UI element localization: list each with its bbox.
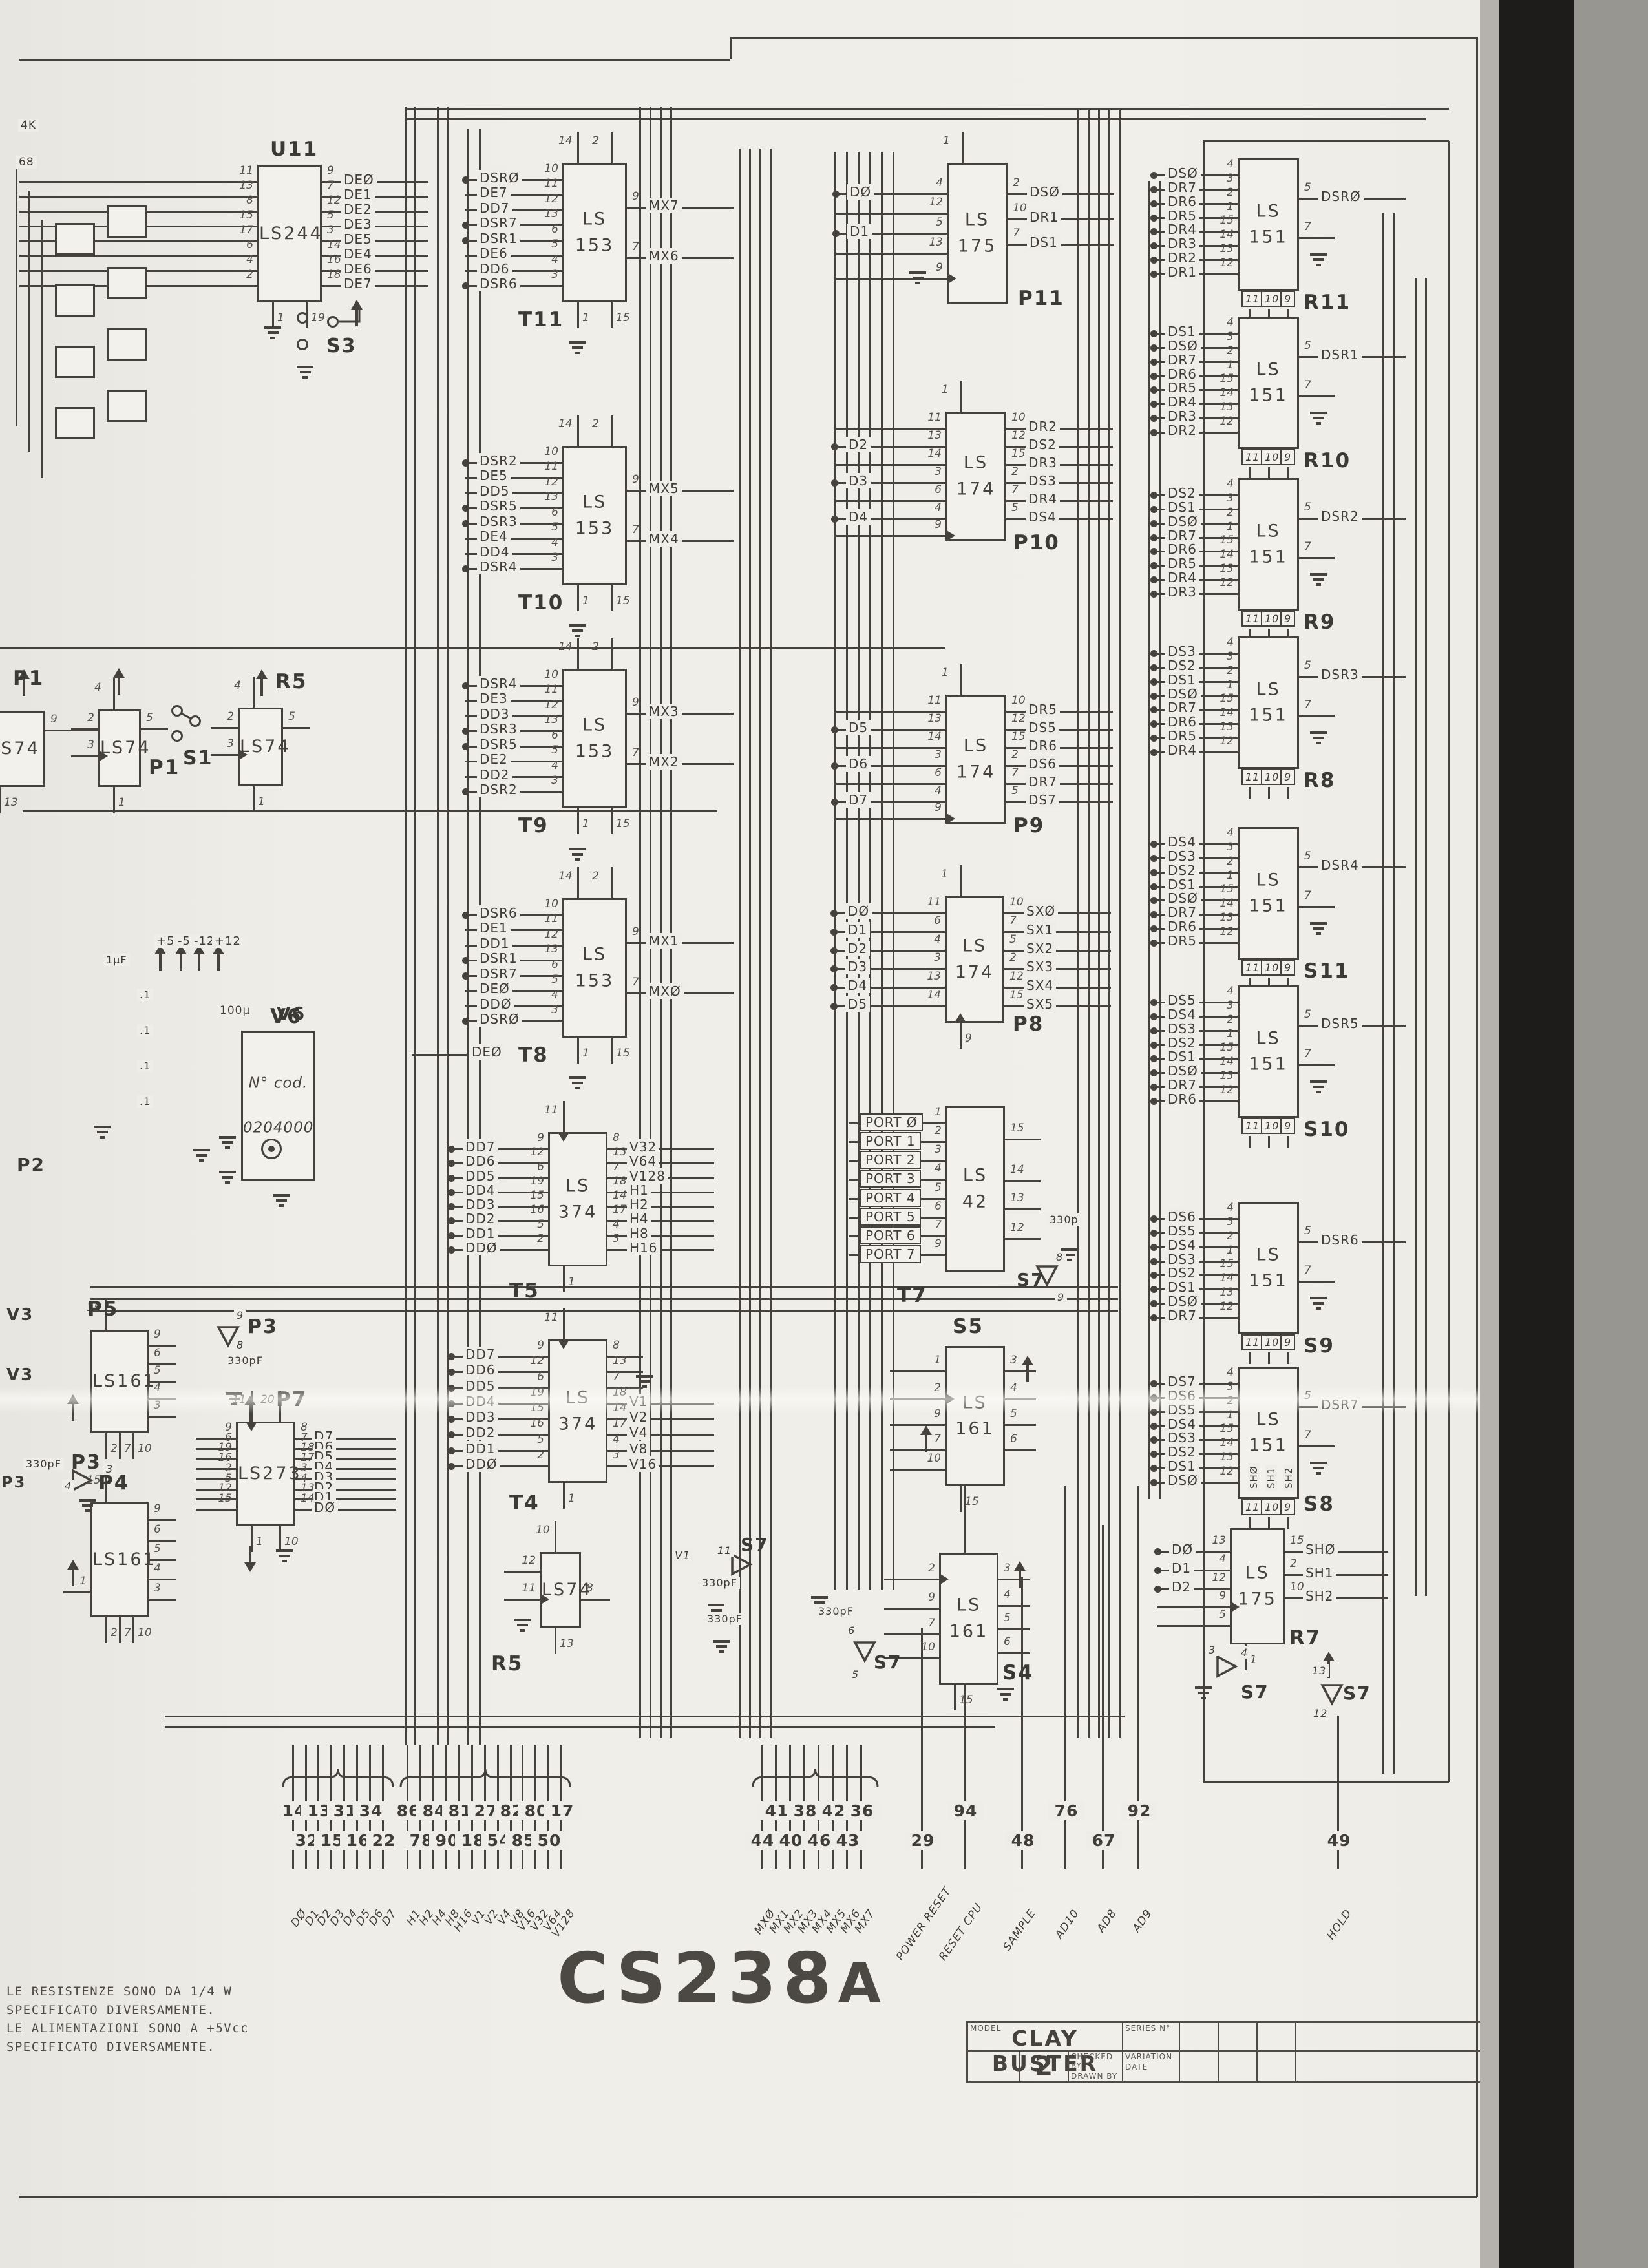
pin-net-label: DE3 bbox=[477, 691, 511, 706]
pin-net-label: PORT Ø bbox=[860, 1113, 923, 1131]
pin-number: 11 bbox=[536, 177, 558, 190]
pin-number: 9 bbox=[154, 1328, 161, 1341]
pin-net-label: D3 bbox=[846, 473, 871, 488]
pin-net-label: DSRØ bbox=[1318, 189, 1364, 204]
net-label: 4 bbox=[62, 1480, 74, 1492]
pin-number: 1 bbox=[582, 817, 589, 830]
pin-number: 5 bbox=[1304, 501, 1311, 514]
pin-number: 5 bbox=[154, 1364, 161, 1377]
pin-net-label: DR2 bbox=[1026, 419, 1060, 434]
title-block: MODEL CLAY BUSTER SERIES N° 2 CHECKED BY… bbox=[966, 2021, 1486, 2083]
connector-pin-number: 17 bbox=[544, 1801, 580, 1820]
pin-number: 12 bbox=[1212, 1465, 1234, 1478]
clock-pin-marker bbox=[955, 1013, 966, 1022]
pin-net-label: DSR7 bbox=[477, 215, 520, 231]
pin-number: 4 bbox=[1010, 1381, 1017, 1394]
pin-number: 13 bbox=[1212, 720, 1234, 733]
pin-net-label: DE4 bbox=[477, 529, 511, 544]
pin-number: 1 bbox=[582, 594, 589, 607]
title-block-empty-cell bbox=[1180, 2023, 1219, 2052]
pin-number: 5 bbox=[1304, 659, 1311, 672]
pin-number: 11 bbox=[920, 411, 942, 424]
pin-number: 2 bbox=[1212, 1394, 1234, 1407]
pin-number: 4 bbox=[1212, 985, 1234, 998]
pin-net-label: DD1 bbox=[463, 1441, 498, 1456]
pin-number: 5 bbox=[1009, 933, 1017, 946]
drawn-by-label: DRAWN BY bbox=[1069, 2071, 1122, 2081]
pin-number: 12 bbox=[1011, 712, 1026, 725]
pin-net-label: DR4 bbox=[1165, 394, 1199, 410]
pin-net-label: PORT 7 bbox=[860, 1245, 921, 1263]
pin-number: 5 bbox=[536, 744, 558, 757]
chip-designator: P1 bbox=[13, 667, 44, 690]
power-arrow-up bbox=[154, 945, 166, 971]
pin-number: 12 bbox=[1212, 576, 1234, 589]
pin-number: 2 bbox=[1212, 344, 1234, 357]
switch-contact bbox=[297, 339, 308, 350]
pin-net-label: V64 bbox=[627, 1153, 659, 1169]
clock-pin-marker bbox=[541, 1594, 549, 1604]
pin-number-boxed: 9 bbox=[1280, 1499, 1295, 1515]
pin-number: 5 bbox=[1304, 850, 1311, 863]
pin-number: 15 bbox=[1290, 1534, 1304, 1547]
pin-number: 6 bbox=[231, 238, 253, 251]
pin-net-label: MX2 bbox=[646, 754, 682, 770]
pin-net-label: DR7 bbox=[1165, 352, 1199, 368]
chip-designator: R5 bbox=[491, 1652, 523, 1675]
chip-designator: R8 bbox=[1304, 769, 1335, 792]
pin-number: 7 bbox=[1304, 1429, 1311, 1442]
power-arrow-up bbox=[193, 945, 205, 971]
clock-pin-marker bbox=[947, 530, 955, 541]
pin-number: 1 bbox=[568, 1492, 575, 1505]
pin-net-label: D4 bbox=[845, 978, 870, 993]
designator-label: P2 bbox=[17, 1154, 45, 1175]
ground-symbol bbox=[513, 1619, 531, 1634]
pin-number: 8 bbox=[231, 194, 253, 207]
pin-net-label: V32 bbox=[627, 1139, 659, 1155]
pin-net-label: DE7 bbox=[341, 276, 375, 291]
pin-net-label: DD7 bbox=[477, 200, 512, 216]
pin-number: 9 bbox=[920, 801, 942, 814]
pin-net-label: H2 bbox=[627, 1197, 651, 1212]
pin-number: 1 bbox=[1212, 1409, 1234, 1422]
pin-number: 4 bbox=[536, 989, 558, 1002]
clock-pin-marker bbox=[100, 751, 108, 761]
pin-number: 12 bbox=[1212, 1300, 1234, 1313]
title-block-empty-cell bbox=[1296, 2023, 1486, 2052]
pin-number: 4 bbox=[920, 784, 942, 797]
pin-number: 9 bbox=[965, 1032, 972, 1045]
pin-net-label: DS3 bbox=[1165, 848, 1199, 864]
net-label: 330pF bbox=[699, 1577, 740, 1589]
pin-number: 9 bbox=[522, 1131, 544, 1144]
net-label: V1 bbox=[672, 1549, 693, 1562]
pin-number: 3 bbox=[536, 268, 558, 281]
pin-number: 15 bbox=[1212, 883, 1234, 896]
pin-number: 12 bbox=[1204, 1571, 1226, 1584]
pin-net-label: DD3 bbox=[463, 1197, 498, 1212]
pin-number: 5 bbox=[522, 1433, 544, 1446]
pin-net-label: D5 bbox=[845, 996, 870, 1012]
pin-number: 5 bbox=[154, 1542, 161, 1555]
pin-net-label: DØ bbox=[312, 1500, 338, 1515]
net-label: 330p bbox=[1047, 1213, 1081, 1226]
net-label: 100μ bbox=[217, 1004, 253, 1017]
pin-number: 11 bbox=[536, 912, 558, 925]
note-line: E LE ALIMENTAZIONI SONO A +5Vcc bbox=[0, 2019, 249, 2038]
pin-number: 12 bbox=[536, 476, 558, 488]
pin-number: 1 bbox=[943, 134, 950, 147]
pin-number: 13 bbox=[1212, 401, 1234, 414]
pin-number: 7 bbox=[1304, 1047, 1311, 1060]
pin-number: 14 bbox=[1212, 1055, 1234, 1068]
pin-net-label: DS1 bbox=[1165, 324, 1199, 339]
pin-number: 9 bbox=[632, 696, 639, 709]
chip-designator: P4 bbox=[98, 1471, 129, 1495]
ground-symbol bbox=[1309, 1080, 1327, 1096]
pin-number: 3 bbox=[536, 551, 558, 564]
pin-number: 3 bbox=[1212, 1380, 1234, 1393]
pin-number: 13 bbox=[4, 796, 18, 809]
pin-number: 5 bbox=[146, 711, 153, 724]
ground-symbol bbox=[1309, 1297, 1327, 1312]
pin-number: 13 bbox=[613, 1354, 627, 1367]
pin-number: 1 bbox=[582, 1047, 589, 1060]
pin-number: 8 bbox=[586, 1582, 593, 1595]
pin-net-label: DS4 bbox=[1165, 1007, 1199, 1022]
ground-symbol bbox=[93, 1126, 111, 1141]
pin-number: 4 bbox=[1212, 636, 1234, 649]
net-label: .1 bbox=[137, 989, 153, 1001]
ground-symbol bbox=[78, 1499, 96, 1515]
pin-number: 7 bbox=[613, 1160, 620, 1173]
pin-net-label: PORT 5 bbox=[860, 1208, 921, 1226]
pin-net-label: DR5 bbox=[1165, 728, 1199, 744]
clock-pin-marker bbox=[948, 273, 956, 284]
pin-net-label: DR7 bbox=[1165, 700, 1199, 715]
pin-net-label: DS3 bbox=[1165, 1430, 1199, 1445]
pin-number: 7 bbox=[1304, 220, 1311, 233]
pin-net-label: DD6 bbox=[463, 1362, 498, 1378]
pin-number: 10 bbox=[536, 898, 558, 910]
pin-number: 9 bbox=[632, 925, 639, 938]
pin-number: 6 bbox=[1010, 1433, 1017, 1445]
pin-net-label: DSR3 bbox=[477, 514, 520, 529]
chip-designator: T4 bbox=[509, 1491, 540, 1515]
pin-net-label: V2 bbox=[627, 1409, 650, 1425]
pin-net-label: DSR3 bbox=[1318, 667, 1362, 682]
pin-number: 7 bbox=[919, 1433, 941, 1445]
power-arrow-up bbox=[213, 945, 224, 971]
pin-number: 6 bbox=[522, 1370, 544, 1383]
pin-number: 13 bbox=[536, 490, 558, 503]
pin-net-label: DD3 bbox=[463, 1409, 498, 1425]
pin-number: 16 bbox=[327, 253, 341, 266]
pin-net-label: DE2 bbox=[477, 751, 511, 767]
pin-net-label: DSR3 bbox=[477, 721, 520, 737]
designator-label: S7 bbox=[741, 1534, 769, 1555]
pin-net-label: DSØ bbox=[1165, 1473, 1201, 1488]
pin-number: 10 bbox=[1009, 896, 1024, 908]
connector-pin-number: 49 bbox=[1321, 1831, 1357, 1850]
pin-number: 2 bbox=[72, 711, 94, 724]
pin-number: 1 bbox=[1212, 869, 1234, 882]
pin-number: 3 bbox=[920, 748, 942, 761]
pin-number: 3 bbox=[920, 465, 942, 478]
drawing-code: CS238A bbox=[557, 1938, 887, 2019]
pin-net-label: PORT 2 bbox=[860, 1151, 921, 1169]
pin-net-label: DSØ bbox=[1165, 514, 1201, 529]
pin-net-label: DSØ bbox=[1165, 890, 1201, 906]
chip-designator: P8 bbox=[1013, 1013, 1044, 1036]
pin-net-label: D1 bbox=[1169, 1560, 1194, 1576]
pin-number: 2 bbox=[1009, 951, 1017, 964]
pin-number: 13 bbox=[1212, 1451, 1234, 1464]
pin-number: 6 bbox=[536, 223, 558, 236]
ground-symbol bbox=[568, 848, 586, 863]
pin-number: 3 bbox=[1212, 999, 1234, 1012]
pin-net-label: DS5 bbox=[1165, 992, 1199, 1008]
connector-pin-number: 50 bbox=[531, 1831, 567, 1850]
connector-pin-number: 92 bbox=[1121, 1801, 1157, 1820]
net-label: SHØ bbox=[1248, 1463, 1260, 1491]
title-block-empty-cell bbox=[1258, 2023, 1296, 2052]
pin-number: 7 bbox=[1304, 379, 1311, 392]
pin-number: 10 bbox=[1011, 694, 1026, 707]
pin-number-boxed: 9 bbox=[1280, 1334, 1295, 1350]
pin-net-label: DSR4 bbox=[477, 676, 520, 691]
power-arrow-up bbox=[351, 300, 363, 326]
pin-number: 4 bbox=[231, 253, 253, 266]
pin-net-label: DSR5 bbox=[1318, 1016, 1362, 1031]
pin-number: 13 bbox=[560, 1637, 574, 1650]
pin-number: 5 bbox=[1011, 501, 1019, 514]
connector-pin-number: 94 bbox=[947, 1801, 984, 1820]
pin-net-label: DS5 bbox=[1026, 720, 1059, 735]
pin-number: 13 bbox=[231, 179, 253, 192]
pin-net-label: MXØ bbox=[646, 983, 684, 999]
designator-label: S7 bbox=[1343, 1683, 1371, 1704]
title-block-empty-cell bbox=[968, 2052, 1020, 2083]
pin-net-label: H1 bbox=[627, 1182, 651, 1198]
pin-net-label: SHØ bbox=[1303, 1542, 1338, 1557]
checked-by-label: CHECKED BY bbox=[1069, 2052, 1122, 2071]
pin-number: 7 bbox=[1304, 540, 1311, 553]
net-label: 4K bbox=[18, 119, 39, 132]
pin-net-label: DS1 bbox=[1165, 1458, 1199, 1474]
ground-symbol bbox=[712, 1640, 730, 1655]
pin-number: 14 bbox=[920, 730, 942, 743]
pin-net-label: DD2 bbox=[463, 1211, 498, 1226]
pin-number: 4 bbox=[1212, 1201, 1234, 1214]
pin-net-label: DE2 bbox=[341, 202, 375, 217]
pin-number: 15 bbox=[1212, 1041, 1234, 1054]
pin-net-label: DS5 bbox=[1165, 1223, 1199, 1239]
pin-net-label: DØ bbox=[1169, 1542, 1196, 1557]
connector-pin-number: 36 bbox=[844, 1801, 880, 1820]
pin-number: 2 bbox=[1212, 1013, 1234, 1026]
net-label: 68 bbox=[16, 156, 37, 169]
pin-number: 3 bbox=[154, 1399, 161, 1412]
connector-pin-number: 43 bbox=[830, 1831, 866, 1850]
pin-net-label: MX6 bbox=[646, 248, 682, 264]
pin-number: 13 bbox=[1010, 1192, 1024, 1204]
pin-net-label: DE7 bbox=[477, 185, 511, 200]
pin-number: 2 bbox=[1011, 465, 1019, 478]
pin-number: 13 bbox=[1212, 562, 1234, 575]
chip-designator: V6 bbox=[270, 1005, 302, 1028]
note-line: N SPECIFICATO DIVERSAMENTE. bbox=[0, 2038, 249, 2057]
pin-number: 15 bbox=[1212, 534, 1234, 547]
pin-number: 5 bbox=[1010, 1407, 1017, 1420]
pin-net-label: D2 bbox=[846, 437, 871, 452]
chip-designator: S10 bbox=[1304, 1118, 1349, 1141]
net-label: +12 bbox=[212, 934, 244, 948]
clock-pin-marker bbox=[940, 1574, 949, 1584]
pin-net-label: DS7 bbox=[1165, 1374, 1199, 1389]
pin-net-label: SXØ bbox=[1024, 903, 1058, 919]
pin-number: 12 bbox=[1011, 429, 1026, 442]
pin-net-label: DD1 bbox=[477, 936, 512, 951]
pin-number: 11 bbox=[544, 1311, 558, 1324]
pin-number: 13 bbox=[536, 207, 558, 220]
pin-net-label: DR4 bbox=[1165, 570, 1199, 585]
pin-net-label: DSR6 bbox=[477, 276, 520, 291]
ground-symbol bbox=[1194, 1686, 1212, 1702]
pin-number-boxed: 9 bbox=[1280, 769, 1295, 785]
pin-number: 6 bbox=[536, 729, 558, 742]
designator-label: S7 bbox=[1241, 1681, 1269, 1703]
pin-number: 6 bbox=[920, 1200, 942, 1213]
pin-number: 9 bbox=[327, 164, 334, 177]
pin-net-label: DR1 bbox=[1027, 209, 1061, 225]
pin-net-label: PORT 3 bbox=[860, 1170, 921, 1188]
pin-net-label: DSRØ bbox=[477, 1011, 522, 1027]
pin-net-label: DR3 bbox=[1026, 455, 1060, 470]
pin-net-label: DR3 bbox=[1165, 408, 1199, 424]
pin-number: 10 bbox=[284, 1535, 299, 1548]
pin-net-label: DE6 bbox=[341, 261, 375, 277]
pin-number: 1 bbox=[942, 383, 949, 396]
title-block-empty-cell bbox=[1219, 2052, 1258, 2083]
pin-number: 14 bbox=[613, 1402, 627, 1414]
pin-number: 10 bbox=[138, 1442, 152, 1455]
chip-designator: P10 bbox=[1013, 531, 1060, 554]
pin-net-label: DDØ bbox=[463, 1456, 500, 1472]
pin-number: 6 bbox=[919, 914, 941, 927]
clock-pin-marker bbox=[239, 750, 248, 760]
pin-number: 4 bbox=[1212, 826, 1234, 839]
pin-number: 15 bbox=[616, 594, 630, 607]
pin-number: 8 bbox=[613, 1131, 620, 1144]
pin-number: 9 bbox=[1204, 1590, 1226, 1602]
chip-designator: P5 bbox=[87, 1297, 118, 1321]
pin-number: 15 bbox=[1009, 989, 1024, 1002]
net-label: 9 bbox=[1055, 1291, 1067, 1303]
net-label: 8 bbox=[234, 1339, 246, 1351]
pin-number: 12 bbox=[1212, 1084, 1234, 1097]
pin-number: 5 bbox=[1304, 1008, 1311, 1021]
pin-net-label: DEØ bbox=[477, 981, 512, 996]
pin-net-label: DØ bbox=[845, 903, 872, 919]
date-label: DATE bbox=[1123, 2062, 1179, 2072]
pin-net-label: DD4 bbox=[463, 1182, 498, 1198]
pin-net-label: DS6 bbox=[1165, 1209, 1199, 1224]
switch-contact bbox=[171, 705, 183, 717]
chip-designator: S9 bbox=[1304, 1334, 1335, 1358]
pin-net-label: D7 bbox=[846, 792, 871, 808]
pin-number: 5 bbox=[1304, 339, 1311, 352]
pin-number: 12 bbox=[1212, 257, 1234, 269]
pin-number: 9 bbox=[913, 1591, 935, 1604]
pin-number: 18 bbox=[613, 1175, 627, 1188]
pin-number: 6 bbox=[1004, 1635, 1011, 1648]
ground-symbol bbox=[635, 1375, 653, 1391]
pin-net-label: DR7 bbox=[1165, 905, 1199, 920]
ground-symbol bbox=[1309, 922, 1327, 938]
designator-label: S3 bbox=[326, 335, 356, 357]
pin-number: 15 bbox=[1011, 447, 1026, 460]
pin-number: 14 bbox=[558, 134, 573, 147]
pin-number: 8 bbox=[613, 1339, 620, 1352]
pin-net-label: DR7 bbox=[1165, 1077, 1199, 1093]
pin-number: 6 bbox=[920, 483, 942, 496]
pin-number: 14 bbox=[1212, 706, 1234, 719]
pin-net-label: DS7 bbox=[1026, 792, 1059, 808]
pin-number: 13 bbox=[536, 713, 558, 726]
connector-pin-number: 22 bbox=[366, 1831, 402, 1850]
pin-net-label: SH1 bbox=[1303, 1565, 1336, 1580]
pin-number: 13 bbox=[1212, 1069, 1234, 1082]
pin-number: 15 bbox=[1011, 730, 1026, 743]
pin-number: 9 bbox=[522, 1339, 544, 1352]
pin-net-label: V8 bbox=[627, 1441, 650, 1456]
pin-net-label: DS2 bbox=[1165, 658, 1199, 673]
pin-number: 5 bbox=[522, 1218, 544, 1231]
net-label: 330pF bbox=[704, 1613, 745, 1625]
pin-number: 11 bbox=[536, 683, 558, 696]
net-label: 330pF bbox=[225, 1354, 266, 1367]
pin-number: 2 bbox=[1212, 1230, 1234, 1243]
pin-number: 15 bbox=[616, 1047, 630, 1060]
pin-number: 15 bbox=[616, 817, 630, 830]
pin-net-label: DS5 bbox=[1165, 1402, 1199, 1418]
chip-designator: T9 bbox=[518, 814, 549, 837]
pin-number: 20 bbox=[260, 1393, 275, 1406]
pin-number: 13 bbox=[921, 236, 943, 249]
pin-number: 6 bbox=[536, 506, 558, 519]
pin-net-label: PORT 6 bbox=[860, 1226, 921, 1244]
pin-net-label: DR6 bbox=[1165, 1091, 1199, 1107]
pin-net-label: MX3 bbox=[646, 704, 682, 719]
pin-number: 2 bbox=[111, 1442, 118, 1455]
ground-symbol bbox=[272, 1194, 290, 1210]
pin-net-label: V1 bbox=[627, 1394, 650, 1409]
pin-number: 5 bbox=[1204, 1608, 1226, 1621]
pin-net-label: DR6 bbox=[1165, 919, 1199, 934]
pin-number: 10 bbox=[536, 445, 558, 458]
pin-net-label: DR4 bbox=[1165, 742, 1199, 758]
pin-net-label: H16 bbox=[627, 1240, 660, 1255]
pin-number: 1 bbox=[1212, 1027, 1234, 1040]
pin-net-label: PORT 1 bbox=[860, 1132, 921, 1150]
pin-number: 18 bbox=[613, 1386, 627, 1399]
pin-number: 14 bbox=[1212, 548, 1234, 561]
pin-number: 2 bbox=[1212, 855, 1234, 868]
pin-net-label: DE1 bbox=[477, 920, 511, 936]
ground-symbol bbox=[218, 1171, 237, 1186]
